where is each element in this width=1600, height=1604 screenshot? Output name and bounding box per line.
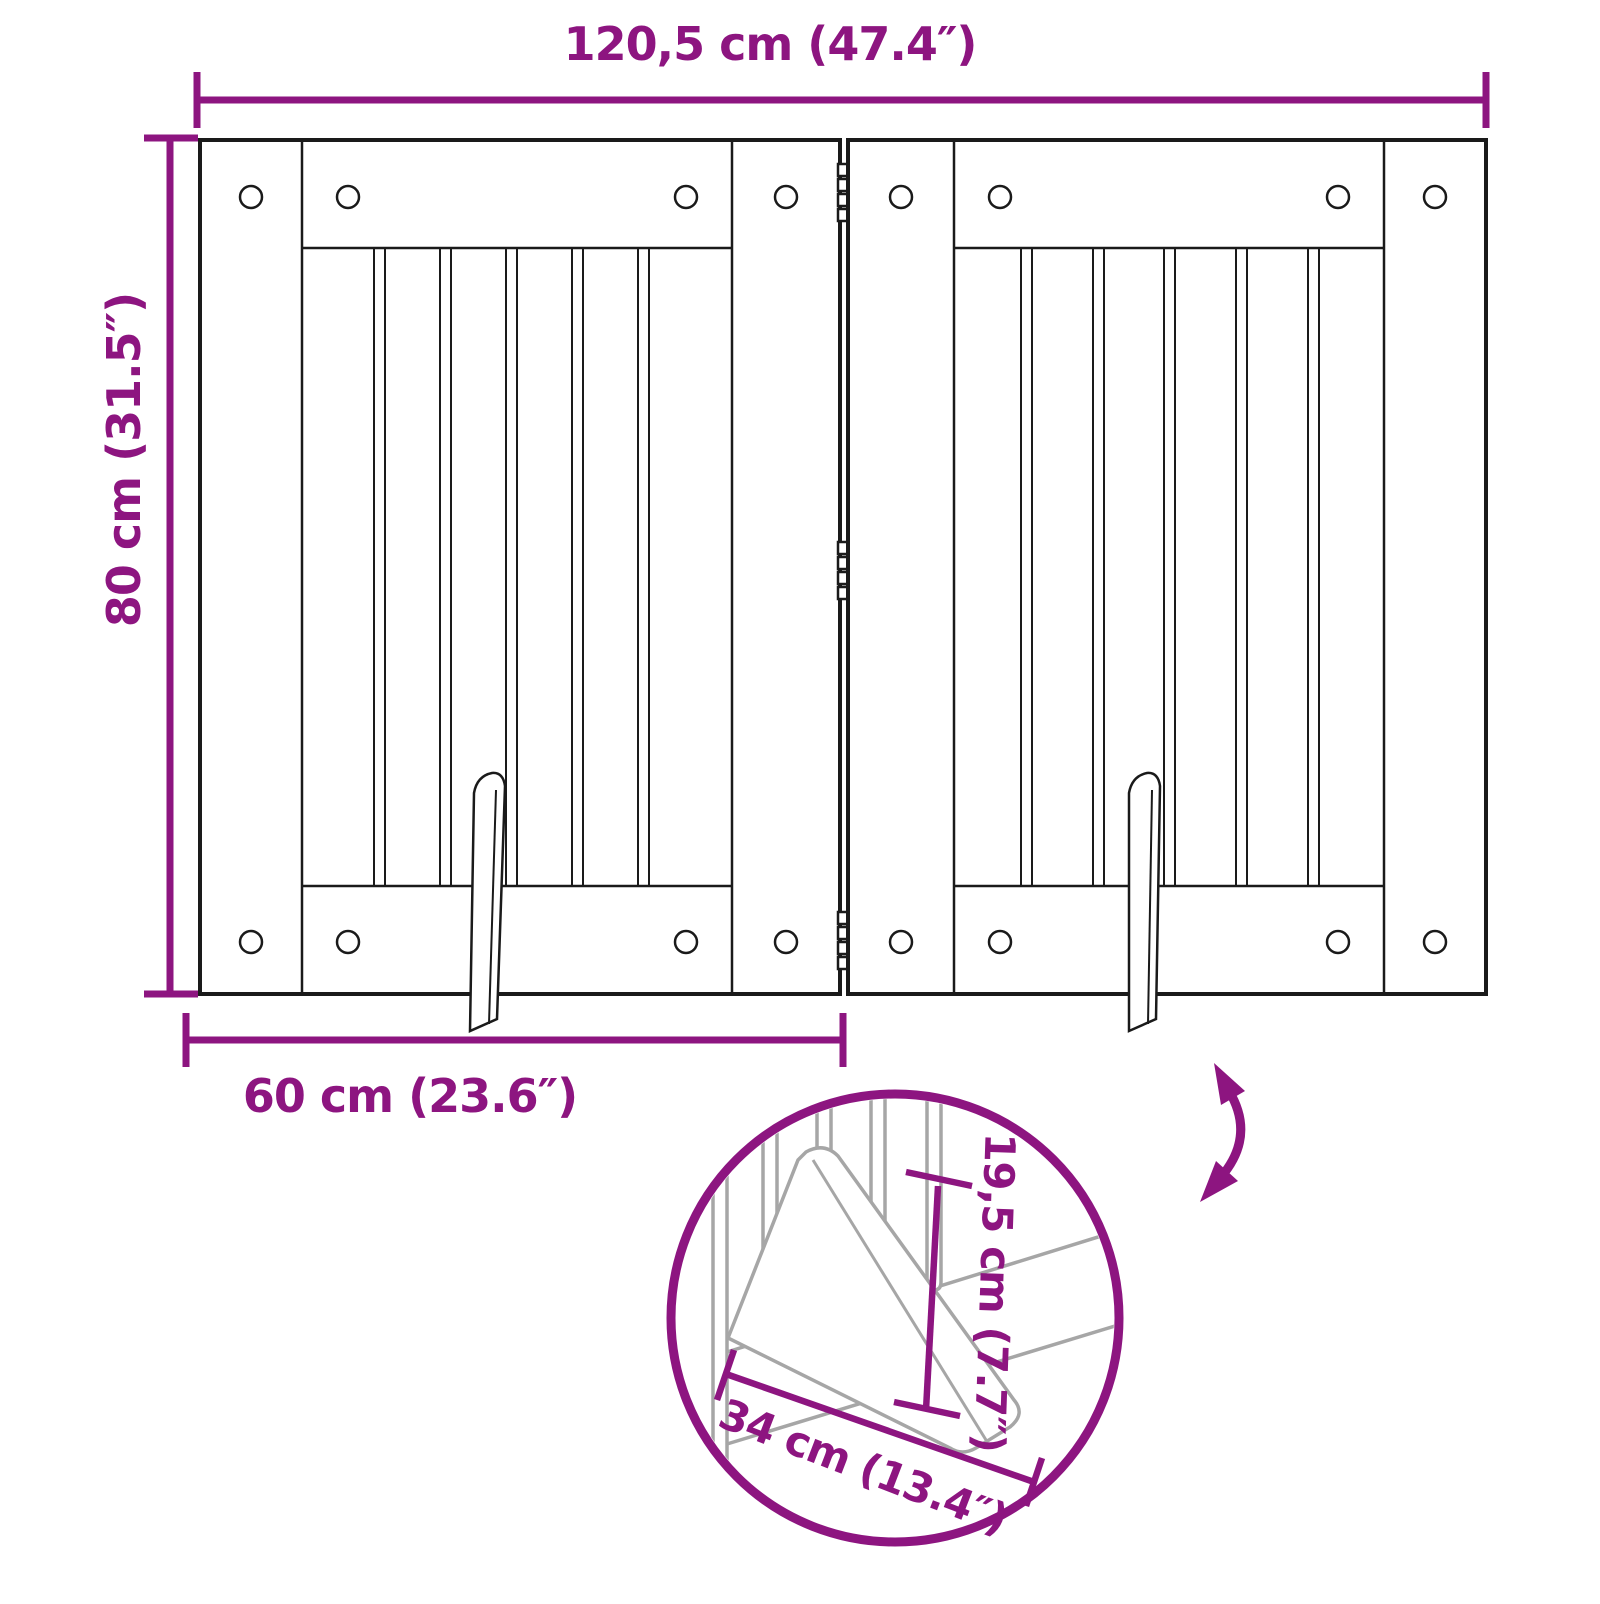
fold-arrow-icon [1200, 1063, 1245, 1202]
label-total-height: 80 cm (31.5″) [97, 293, 151, 627]
gate-drawing [200, 140, 1486, 1031]
dimension-panel-width [186, 1013, 843, 1067]
label-panel-width: 60 cm (23.6″) [243, 1069, 577, 1123]
arrow-head-top [1214, 1063, 1245, 1105]
dimension-total-width [197, 72, 1486, 128]
dimension-diagram: 120,5 cm (47.4″) 80 cm (31.5″) 60 cm (23… [0, 0, 1600, 1600]
dimension-total-height [144, 138, 198, 994]
arrow-arc [1221, 1091, 1241, 1177]
foot-outline [1129, 773, 1160, 1031]
support-foot-right [1129, 773, 1160, 1031]
gate-left-panel [200, 140, 840, 1031]
diagram-page: 120,5 cm (47.4″) 80 cm (31.5″) 60 cm (23… [0, 0, 1600, 1600]
panel-outline [848, 140, 1486, 994]
panel-outline [200, 140, 840, 994]
gate-right-panel [848, 140, 1486, 1031]
label-total-width: 120,5 cm (47.4″) [564, 17, 977, 71]
detail-inset: 19,5 cm (7.7″) 34 cm (13.4″) [671, 1080, 1148, 1544]
